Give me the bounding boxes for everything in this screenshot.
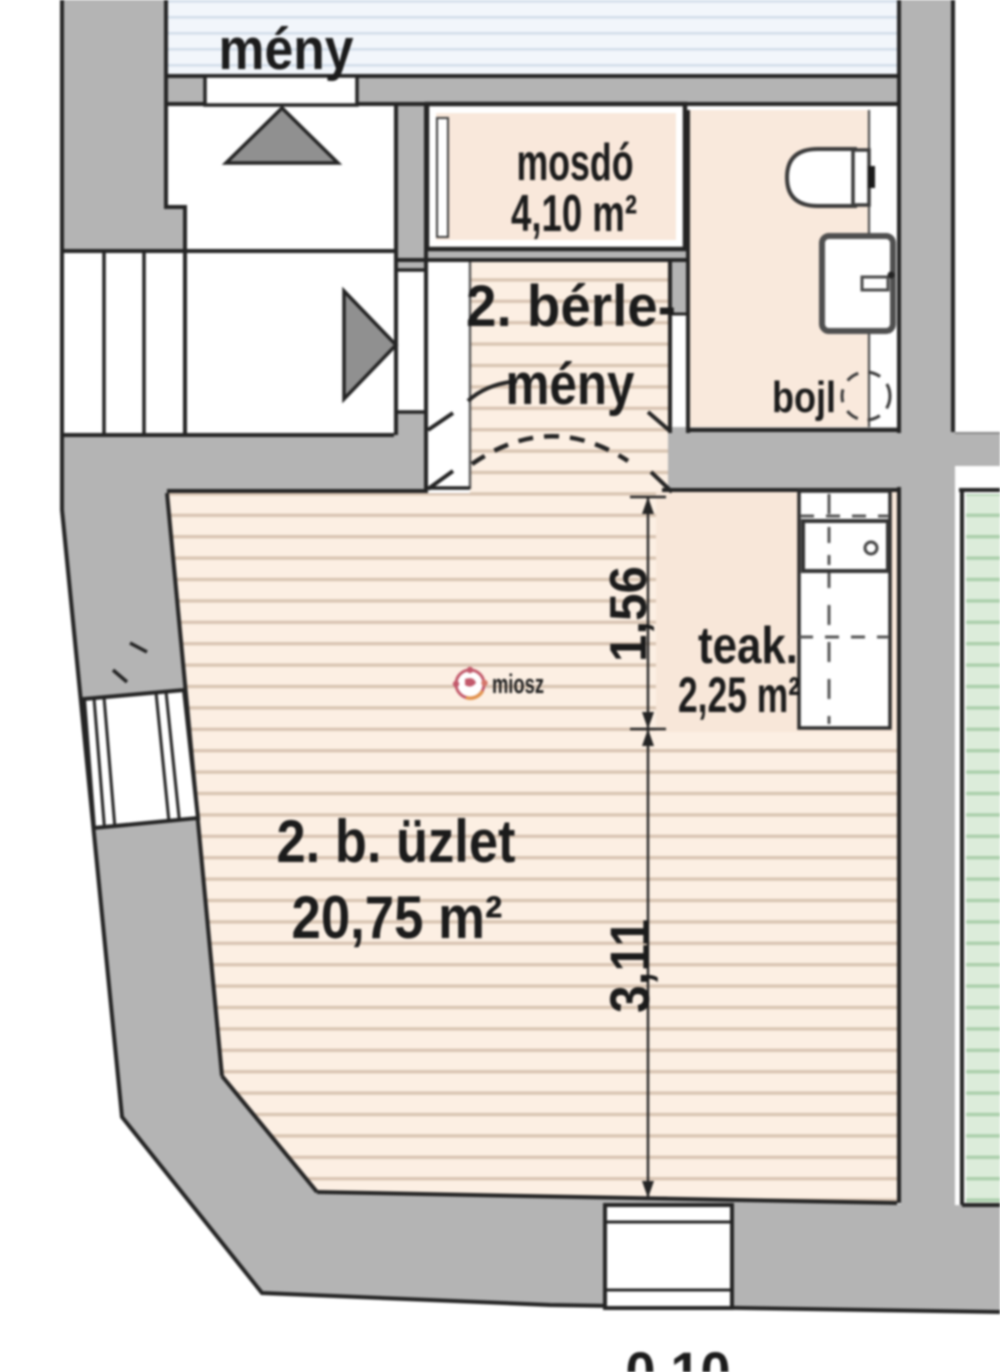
svg-text:2. bérle-: 2. bérle- [466,274,676,339]
svg-text:mosdó: mosdó [517,134,634,192]
svg-text:0,10: 0,10 [626,1340,731,1372]
svg-text:bojl: bojl [772,373,836,422]
svg-text:2. b. üzlet: 2. b. üzlet [277,808,516,875]
svg-text:1,56: 1,56 [600,566,658,662]
svg-text:mény: mény [219,17,354,82]
svg-text:4,10 m²: 4,10 m² [511,185,637,243]
svg-text:miosz: miosz [492,669,544,699]
svg-text:mény: mény [506,352,635,417]
svg-text:2,25 m²: 2,25 m² [678,667,800,723]
svg-text:3,11: 3,11 [598,919,661,1013]
svg-text:20,75 m²: 20,75 m² [292,884,503,951]
